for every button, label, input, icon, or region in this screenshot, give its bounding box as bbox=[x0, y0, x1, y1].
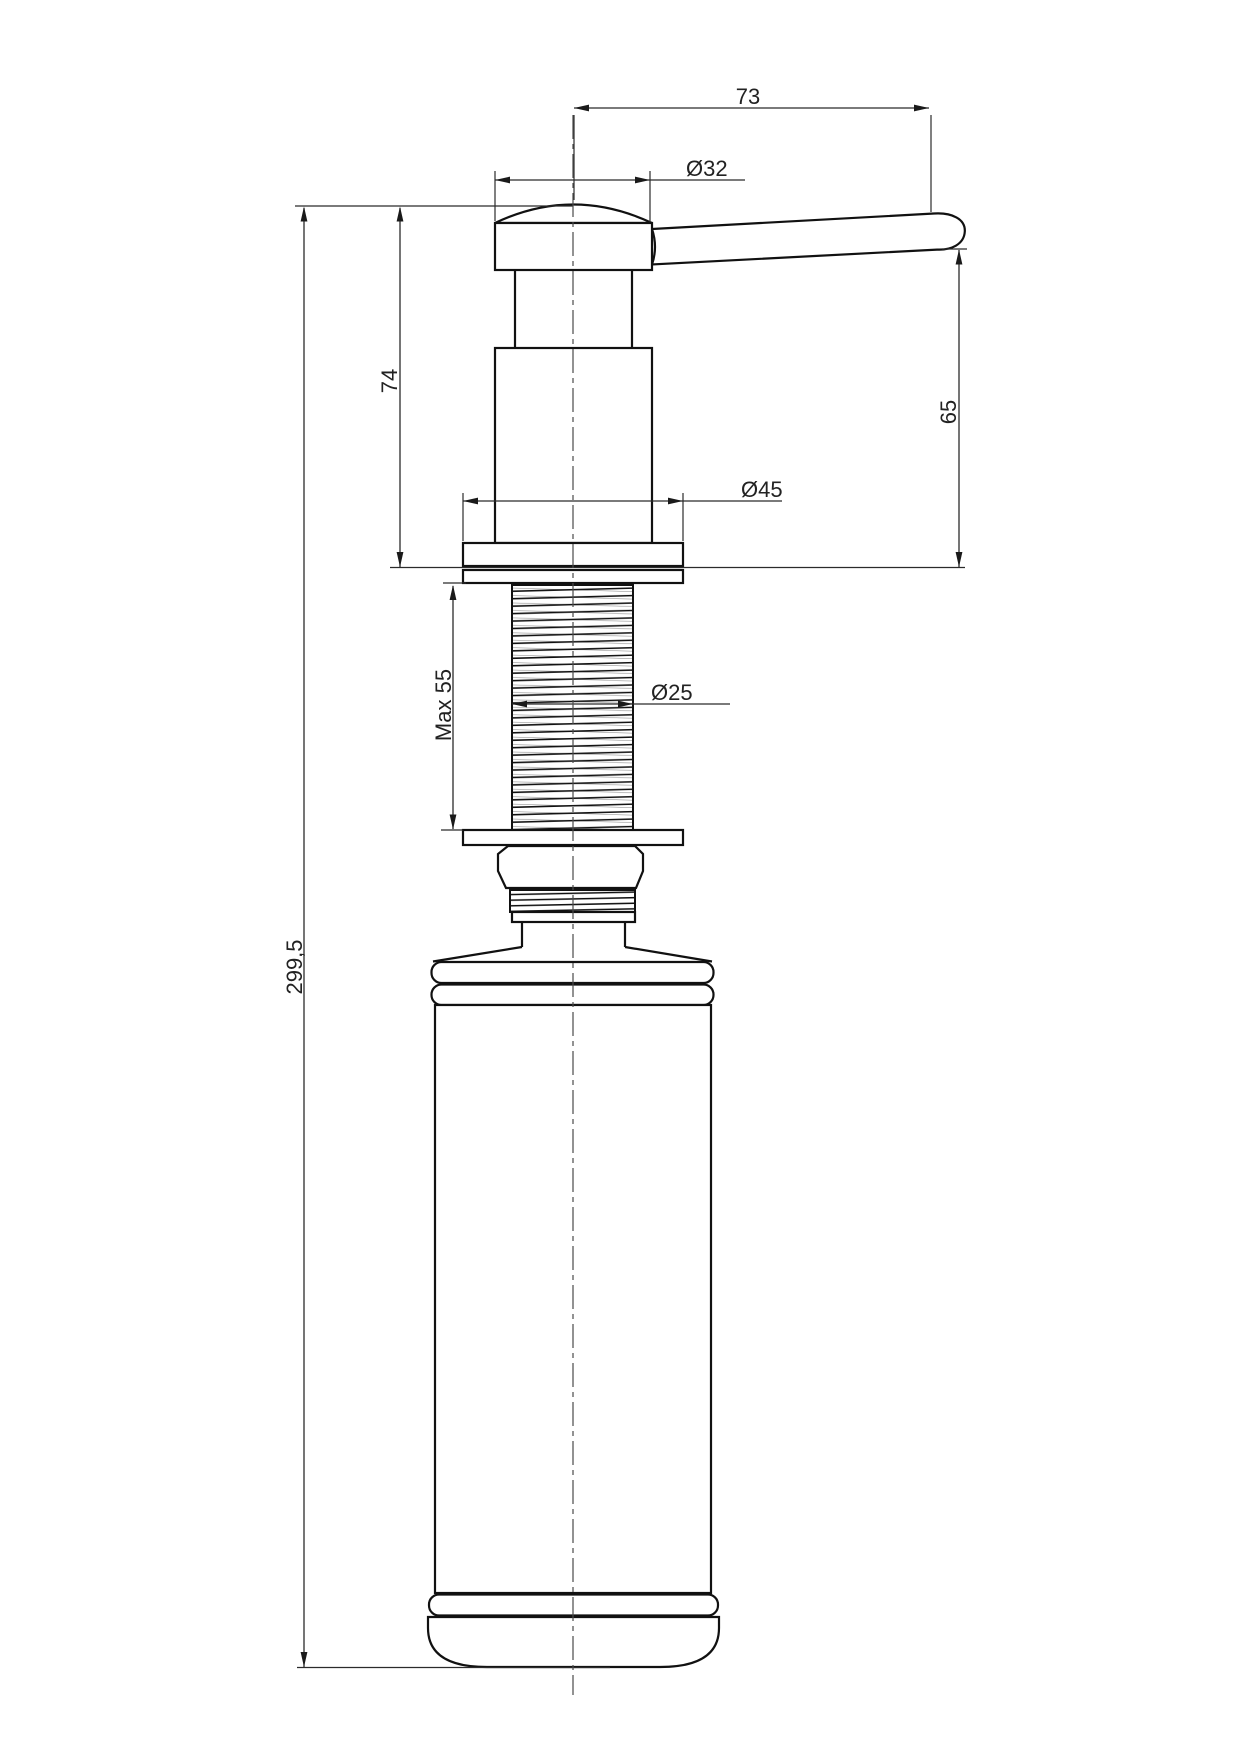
spout-lever bbox=[652, 213, 965, 264]
dim-spout-height: 65 bbox=[936, 400, 961, 424]
dim-cap-diameter: Ø32 bbox=[686, 156, 728, 181]
dim-flange-diameter: Ø45 bbox=[741, 477, 783, 502]
dim-thread-diameter: Ø25 bbox=[651, 680, 693, 705]
dim-thread-length: Max 55 bbox=[431, 669, 456, 741]
dim-total-height: 299,5 bbox=[282, 939, 307, 994]
soap-dispenser-technical-drawing: 73 Ø32 74 65 Ø45 Max 55 Ø25 299,5 bbox=[0, 0, 1240, 1755]
drawing-canvas: 73 Ø32 74 65 Ø45 Max 55 Ø25 299,5 bbox=[0, 0, 1240, 1755]
dim-pump-height: 74 bbox=[377, 369, 402, 393]
dim-spout-length: 73 bbox=[736, 84, 760, 109]
lock-nut bbox=[498, 846, 643, 888]
